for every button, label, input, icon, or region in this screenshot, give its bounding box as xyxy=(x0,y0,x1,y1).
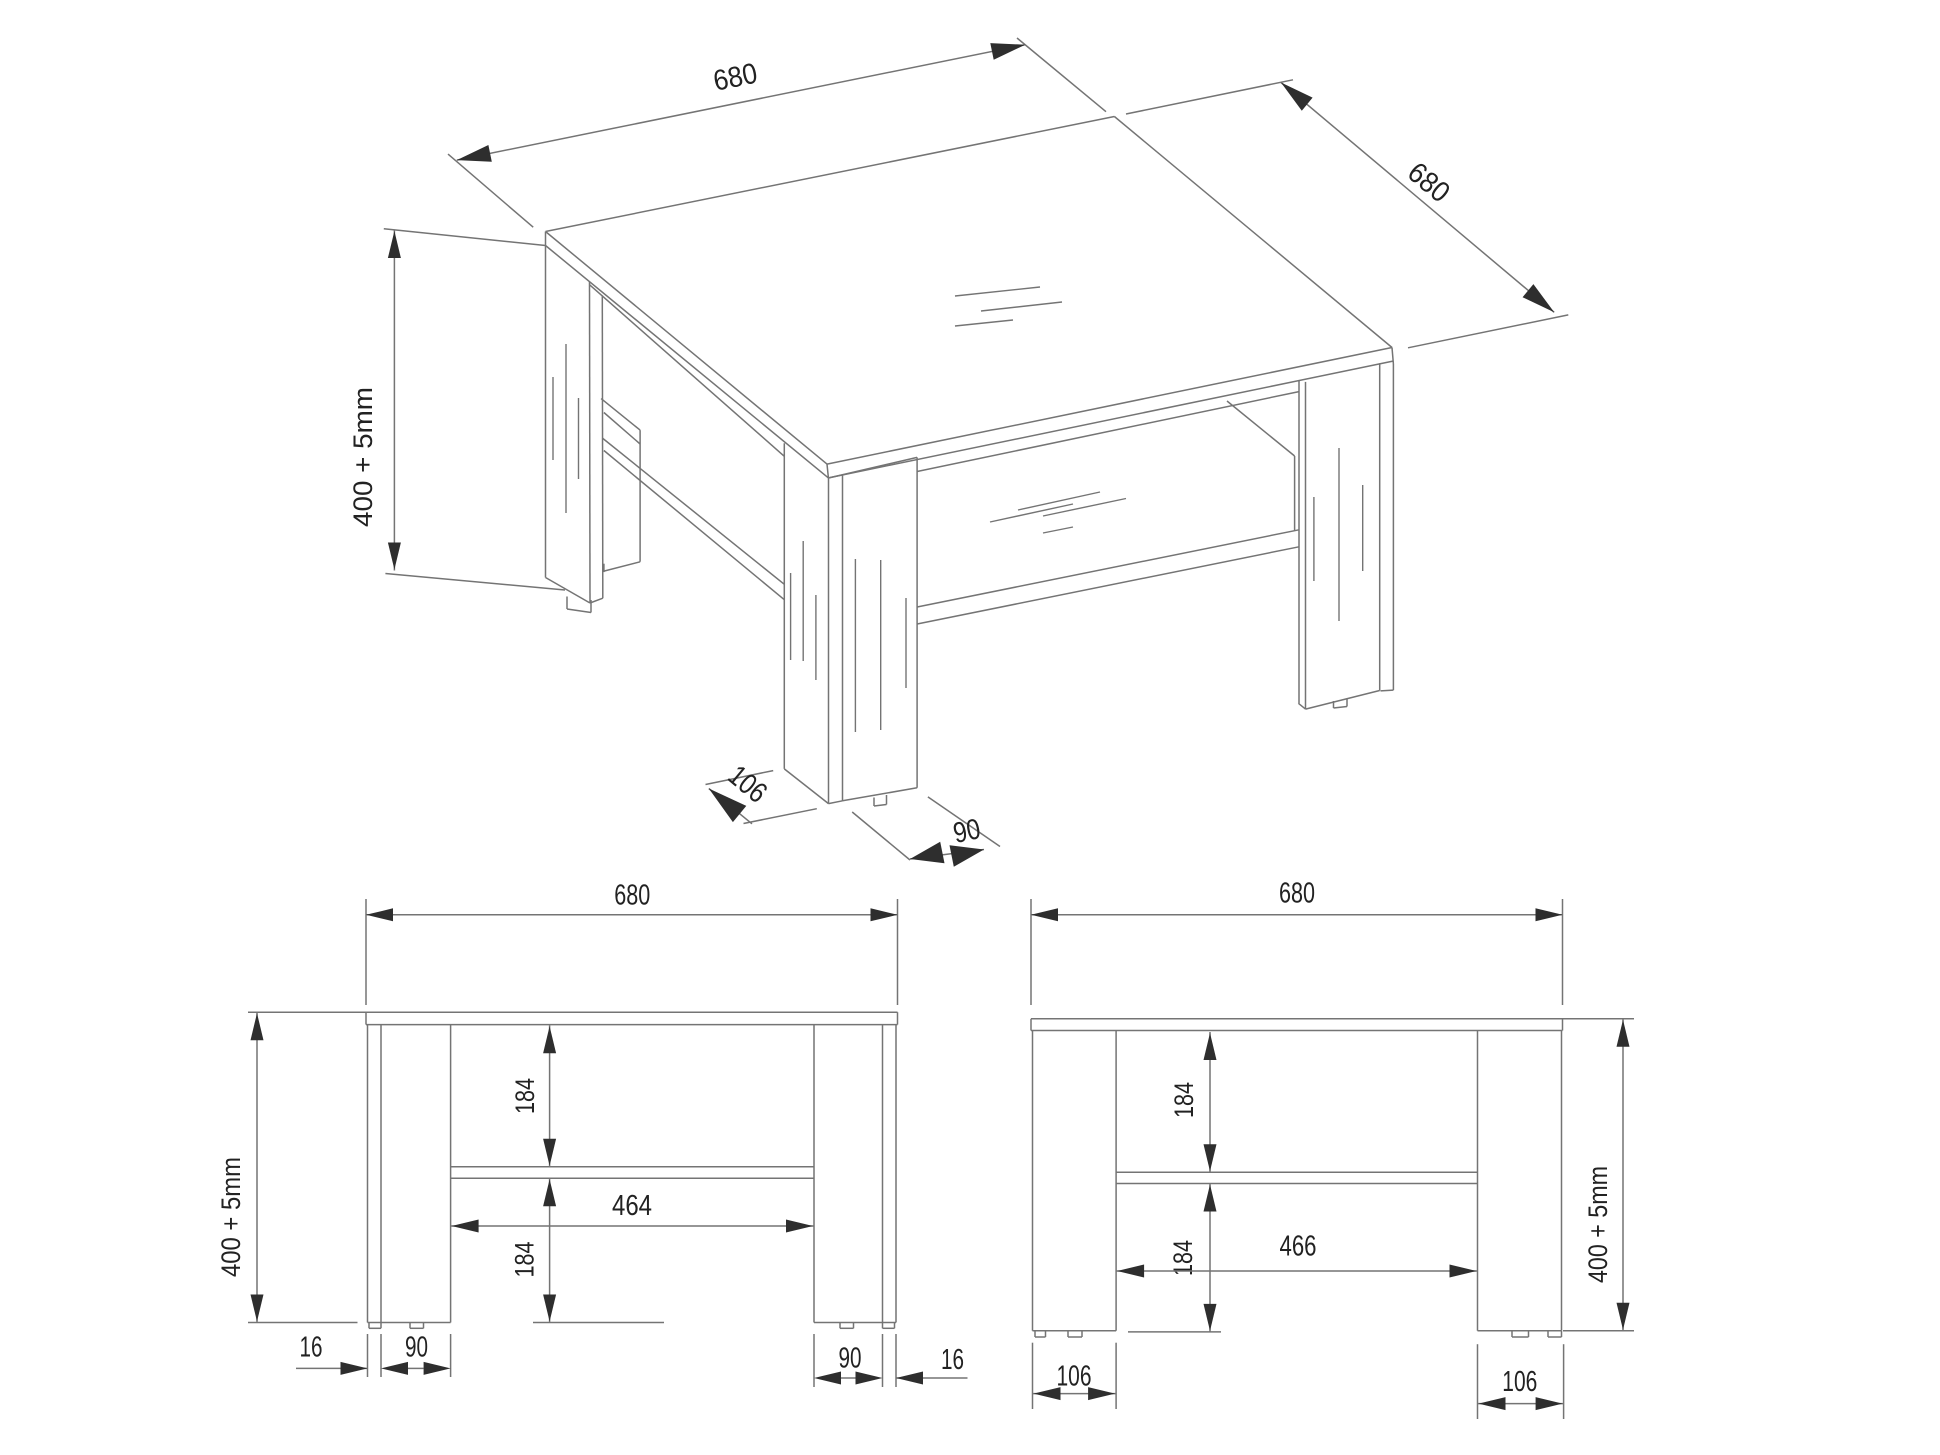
svg-text:466: 466 xyxy=(1280,1231,1317,1263)
svg-text:106: 106 xyxy=(1502,1366,1537,1398)
svg-text:400 + 5mm: 400 + 5mm xyxy=(216,1157,246,1277)
svg-text:184: 184 xyxy=(1169,1082,1199,1118)
svg-text:400 + 5mm: 400 + 5mm xyxy=(348,387,378,527)
svg-text:184: 184 xyxy=(510,1078,540,1114)
svg-text:16: 16 xyxy=(941,1344,964,1376)
svg-text:184: 184 xyxy=(510,1242,540,1278)
svg-text:106: 106 xyxy=(1057,1361,1092,1393)
svg-text:400 + 5mm: 400 + 5mm xyxy=(1583,1166,1613,1283)
svg-text:464: 464 xyxy=(612,1190,652,1222)
svg-text:680: 680 xyxy=(614,879,650,911)
svg-text:90: 90 xyxy=(405,1332,428,1364)
svg-text:90: 90 xyxy=(839,1343,862,1375)
svg-text:680: 680 xyxy=(1279,878,1315,910)
svg-text:16: 16 xyxy=(300,1332,323,1364)
